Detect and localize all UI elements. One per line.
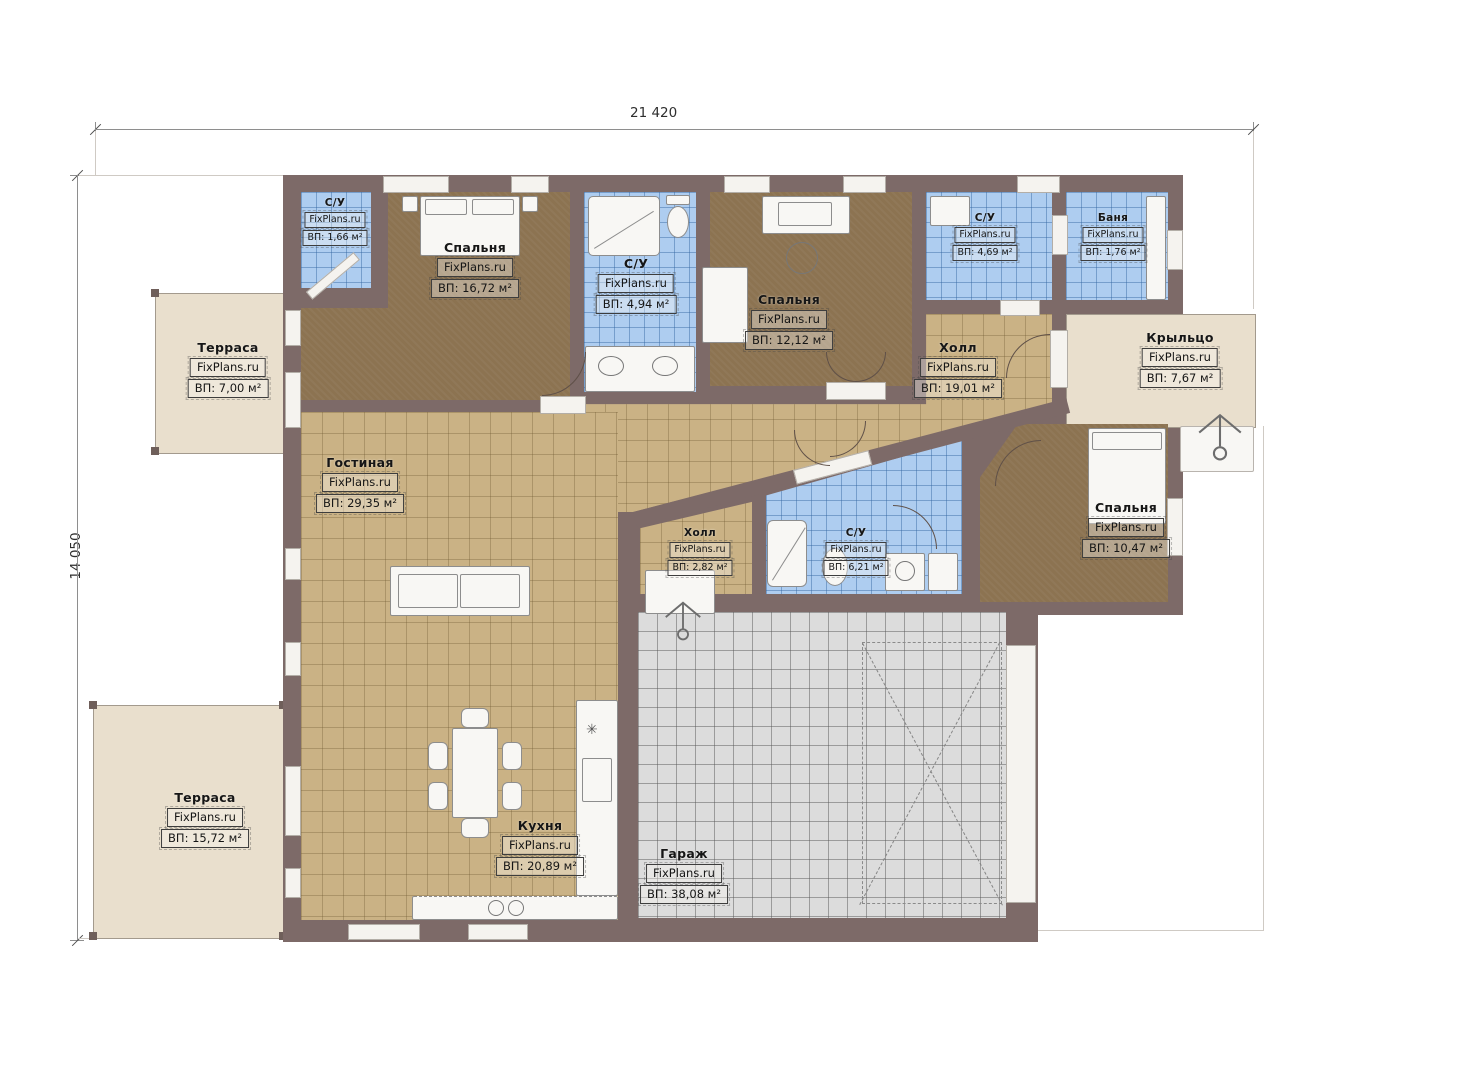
chair [786,242,818,274]
brand-box: FixPlans.ru [502,836,578,855]
terrace-post [89,701,97,709]
terrace-post [151,289,159,297]
entry-arrow-icon [1192,410,1248,462]
sink [598,356,624,376]
room-label-living: Гостиная FixPlans.ru ВП: 29,35 м² [316,455,404,513]
extension-line [95,131,96,175]
room-name: С/У [823,527,888,539]
entry-arrow-icon [660,598,706,642]
brand-box: FixPlans.ru [598,274,674,293]
room-label-hall-main: Холл FixPlans.ru ВП: 19,01 м² [914,340,1002,398]
room-label-bedroom-1: Спальня FixPlans.ru ВП: 16,72 м² [431,240,519,298]
brand-box: FixPlans.ru [825,542,886,558]
room-name: Холл [914,340,1002,355]
room-label-wc-top-left: С/У FixPlans.ru ВП: 1,66 м² [302,197,367,246]
dimension-left-label: 14 050 [68,516,84,596]
area-box: ВП: 7,00 м² [188,379,269,398]
room-label-garage: Гараж FixPlans.ru ВП: 38,08 м² [640,846,728,904]
window [285,548,301,580]
brand-box: FixPlans.ru [1088,518,1164,537]
oven [582,758,612,802]
window [468,924,528,940]
washer-drum [895,561,915,581]
toilet [667,206,689,238]
window [285,868,301,898]
nightstand [522,196,538,212]
area-box: ВП: 1,66 м² [302,230,367,246]
desk-item [778,202,832,226]
area-box: ВП: 2,82 м² [667,560,732,576]
nightstand [402,196,418,212]
room-name: С/У [596,256,677,271]
brand-box: FixPlans.ru [920,358,996,377]
room-label-terrace-bottom: Терраса FixPlans.ru ВП: 15,72 м² [161,790,249,848]
room-name: Холл [667,527,732,539]
sink [652,356,678,376]
room-name: Гараж [640,846,728,861]
room-label-bedroom-3: Спальня FixPlans.ru ВП: 10,47 м² [1082,500,1170,558]
room-label-wc-right: С/У FixPlans.ru ВП: 4,69 м² [952,212,1017,261]
room-name: Крыльцо [1140,330,1221,345]
garage-gate [1006,645,1036,903]
window [383,176,449,193]
sofa-seat [460,574,520,608]
room-label-kitchen: Кухня FixPlans.ru ВП: 20,89 м² [496,818,584,876]
terrace-door [285,766,301,836]
room-label-banya: Баня FixPlans.ru ВП: 1,76 м² [1080,212,1145,261]
window [1167,230,1183,270]
chair [461,818,489,838]
brand-box: FixPlans.ru [646,864,722,883]
window [285,310,301,346]
brand-box: FixPlans.ru [669,542,730,558]
sofa-seat [398,574,458,608]
shower [588,196,660,256]
pillow [472,199,514,215]
area-box: ВП: 15,72 м² [161,829,249,848]
area-box: ВП: 10,47 м² [1082,539,1170,558]
room-label-hall-small: Холл FixPlans.ru ВП: 2,82 м² [667,527,732,576]
brand-box: FixPlans.ru [167,808,243,827]
window [1017,176,1060,193]
dining-table [452,728,498,818]
area-box: ВП: 29,35 м² [316,494,404,513]
canopy-line [1263,426,1264,930]
room-name: С/У [302,197,367,209]
fridge-icon: ✳ [586,722,598,738]
area-box: ВП: 38,08 м² [640,885,728,904]
brand-box: FixPlans.ru [751,310,827,329]
dimension-top-label: 21 420 [630,105,677,121]
area-box: ВП: 4,69 м² [952,245,1017,261]
room-name: Баня [1080,212,1145,224]
dimension-top-line [95,129,1253,130]
room-label-porch: Крыльцо FixPlans.ru ВП: 7,67 м² [1140,330,1221,388]
brand-box: FixPlans.ru [322,473,398,492]
toilet-tank [666,195,690,205]
door-opening [540,396,586,414]
floor-plan-canvas: ✳ С/У FixPlans.ru ВП: 1,66 м² Спальня Fi… [0,0,1474,1080]
chair [502,782,522,810]
room-name: Кухня [496,818,584,833]
area-box: ВП: 7,67 м² [1140,369,1221,388]
door-opening [1052,215,1068,255]
dimension-left-line [77,175,78,940]
area-box: ВП: 6,21 м² [823,560,888,576]
room-name: Спальня [431,240,519,255]
area-box: ВП: 19,01 м² [914,379,1002,398]
chair [428,742,448,770]
parking-cross [862,643,1003,905]
room-label-terrace-top: Терраса FixPlans.ru ВП: 7,00 м² [188,340,269,398]
area-box: ВП: 12,12 м² [745,331,833,350]
brand-box: FixPlans.ru [954,227,1015,243]
area-box: ВП: 20,89 м² [496,857,584,876]
window [348,924,420,940]
area-box: ВП: 16,72 м² [431,279,519,298]
parking-cross [859,643,1000,905]
room-name: Терраса [161,790,249,805]
stove-burner [488,900,504,916]
entry-door-opening [1050,330,1068,388]
parking-outline [862,642,1002,904]
room-label-wc-center: С/У FixPlans.ru ВП: 6,21 м² [823,527,888,576]
terrace-post [151,447,159,455]
room-label-bedroom-2: Спальня FixPlans.ru ВП: 12,12 м² [745,292,833,350]
vanity [928,553,958,591]
room-name: Спальня [1082,500,1170,515]
window [843,176,886,193]
pillow [425,199,467,215]
chair [428,782,448,810]
canopy-line [1038,930,1264,931]
room-name: Гостиная [316,455,404,470]
brand-box: FixPlans.ru [1142,348,1218,367]
door-opening [826,382,886,400]
extension-line [79,175,283,176]
window [511,176,549,193]
brand-box: FixPlans.ru [1082,227,1143,243]
chair [502,742,522,770]
pillow [1092,432,1162,450]
brand-box: FixPlans.ru [304,212,365,228]
area-box: ВП: 4,94 м² [596,295,677,314]
door-opening [1000,300,1040,316]
extension-line [1253,131,1254,309]
brand-box: FixPlans.ru [190,358,266,377]
terrace-post [89,932,97,940]
room-name: С/У [952,212,1017,224]
chair [461,708,489,728]
window [285,642,301,676]
room-name: Спальня [745,292,833,307]
room-label-wc-shower: С/У FixPlans.ru ВП: 4,94 м² [596,256,677,314]
wardrobe [702,267,748,343]
bench [1146,196,1166,300]
stove-burner [508,900,524,916]
window [724,176,770,193]
brand-box: FixPlans.ru [437,258,513,277]
room-name: Терраса [188,340,269,355]
terrace-door [285,372,301,428]
area-box: ВП: 1,76 м² [1080,245,1145,261]
